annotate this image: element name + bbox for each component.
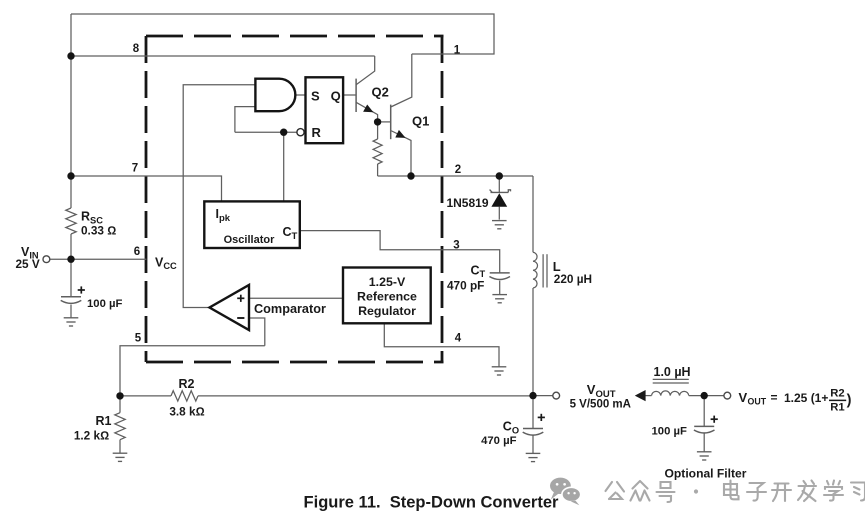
svg-text:Reference: Reference — [357, 289, 417, 303]
svg-text:R2: R2 — [830, 388, 844, 400]
svg-text:): ) — [847, 393, 852, 409]
svg-text:OUT: OUT — [748, 397, 767, 407]
svg-text:1.0 µH: 1.0 µH — [654, 365, 691, 379]
svg-text:1.25 (1+: 1.25 (1+ — [784, 391, 828, 405]
svg-text:Comparator: Comparator — [254, 302, 326, 316]
svg-text:0.33 Ω: 0.33 Ω — [81, 223, 116, 237]
svg-text:1N5819: 1N5819 — [446, 196, 488, 210]
svg-text:470 µF: 470 µF — [481, 435, 516, 447]
svg-text:3.8 kΩ: 3.8 kΩ — [169, 404, 204, 418]
svg-text:Oscillator: Oscillator — [224, 234, 275, 246]
svg-text:8: 8 — [133, 43, 140, 55]
svg-text:1.2 kΩ: 1.2 kΩ — [74, 429, 109, 443]
svg-text:4: 4 — [455, 333, 462, 345]
svg-text:R2: R2 — [179, 377, 195, 391]
svg-text:220 µH: 220 µH — [554, 272, 592, 286]
svg-text:Q1: Q1 — [412, 114, 429, 129]
svg-text:25 V: 25 V — [16, 257, 40, 271]
svg-text:V: V — [739, 390, 748, 405]
svg-text:Regulator: Regulator — [358, 304, 416, 318]
svg-text:3: 3 — [453, 239, 459, 251]
svg-text:1.25-V: 1.25-V — [369, 275, 406, 289]
svg-text:5 V/500 mA: 5 V/500 mA — [570, 399, 631, 411]
svg-text:2: 2 — [455, 164, 461, 176]
svg-text:100 µF: 100 µF — [652, 425, 687, 437]
svg-text:5: 5 — [135, 333, 142, 345]
svg-text:Q2: Q2 — [372, 85, 389, 100]
svg-text:100 µF: 100 µF — [87, 298, 122, 310]
svg-text:1: 1 — [454, 45, 461, 57]
svg-text:R1: R1 — [830, 402, 844, 414]
svg-text:R: R — [312, 125, 322, 140]
svg-text:470 pF: 470 pF — [447, 278, 484, 292]
svg-text:Optional Filter: Optional Filter — [665, 467, 747, 481]
svg-text:=: = — [771, 391, 778, 405]
svg-text:6: 6 — [134, 246, 140, 258]
svg-text:7: 7 — [132, 163, 138, 175]
svg-text:Q: Q — [331, 89, 341, 104]
svg-text:S: S — [311, 89, 320, 104]
svg-text:R1: R1 — [96, 414, 112, 428]
svg-text:Figure 11. Step-Down Converte: Figure 11. Step-Down Converter — [304, 494, 559, 512]
